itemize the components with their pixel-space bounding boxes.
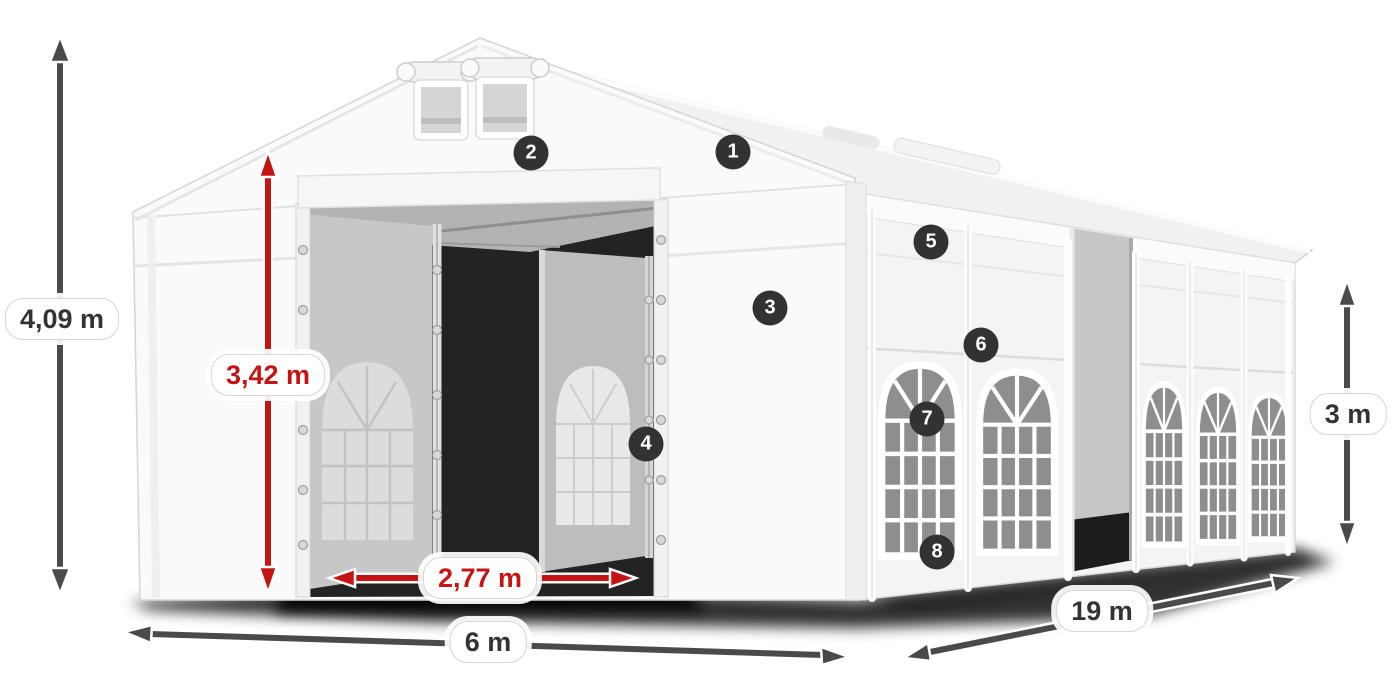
feature-marker-7[interactable]: 7 (910, 402, 945, 437)
feature-marker-5[interactable]: 5 (914, 225, 949, 260)
side-wall-height-label: 3 m (1310, 393, 1387, 435)
feature-marker-6[interactable]: 6 (964, 328, 999, 363)
feature-marker-4[interactable]: 4 (629, 427, 664, 462)
feature-marker-2[interactable]: 2 (514, 136, 549, 171)
feature-marker-1[interactable]: 1 (716, 135, 751, 170)
side-length-label: 19 m (1056, 590, 1148, 632)
main-entrance (300, 199, 660, 597)
side-entrance (1070, 228, 1133, 572)
feature-marker-3[interactable]: 3 (753, 291, 788, 326)
front-width-label: 6 m (450, 621, 527, 663)
total-height-label: 4,09 m (5, 298, 119, 340)
entrance-height-label: 3,42 m (211, 354, 325, 396)
feature-marker-8[interactable]: 8 (920, 535, 955, 570)
entrance-width-label: 2,77 m (423, 557, 537, 599)
tent-illustration (0, 0, 1400, 700)
tent-dimension-diagram: 4,09 m 3,42 m 2,77 m 6 m 19 m 3 m 1 2 3 … (0, 0, 1400, 700)
